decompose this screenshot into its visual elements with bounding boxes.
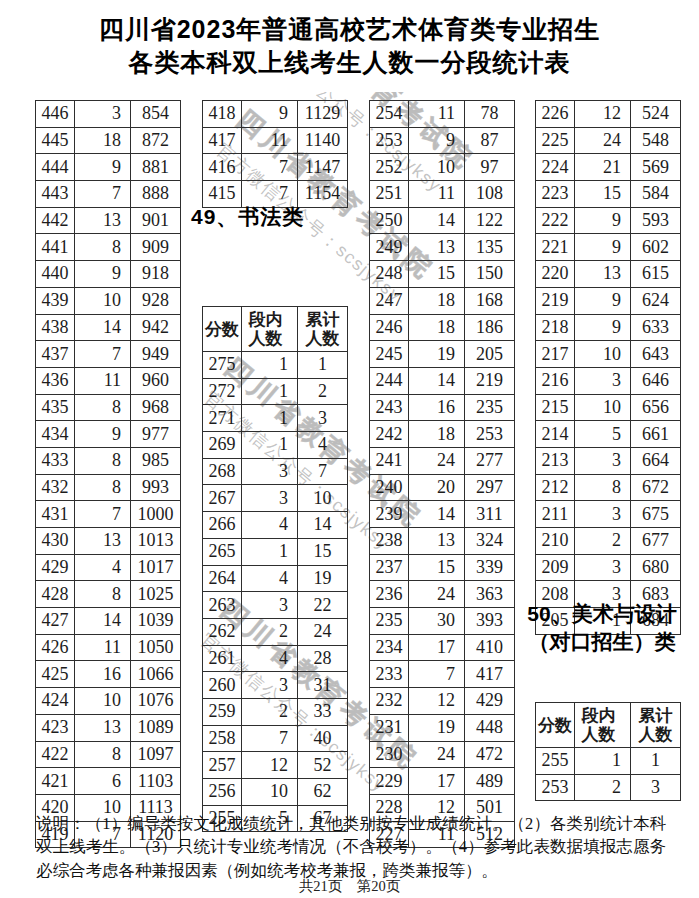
segment-count-cell: 3	[575, 367, 631, 394]
table-row: 4463854	[36, 101, 181, 128]
score-cell: 210	[536, 528, 575, 555]
title-line-2: 各类本科双上线考生人数一分段统计表	[0, 46, 699, 79]
table-row: 44518872	[36, 127, 181, 154]
cumulative-count-cell: 548	[631, 127, 681, 154]
table-row: 43910928	[36, 287, 181, 314]
score-cell: 257	[203, 752, 242, 779]
table-row: 2145661	[536, 421, 681, 448]
table-row: 26914	[203, 432, 348, 459]
segment-count-cell: 3	[575, 501, 631, 528]
cumulative-count-cell: 363	[465, 581, 515, 608]
segment-count-cell: 15	[409, 554, 465, 581]
score-cell: 262	[203, 618, 242, 645]
cumulative-count-cell: 150	[465, 261, 515, 288]
segment-count-cell: 3	[75, 101, 131, 128]
table-row: 2163646	[536, 367, 681, 394]
segment-count-cell: 10	[242, 779, 298, 806]
segment-count-cell: 3	[242, 458, 298, 485]
segment-count-cell: 7	[75, 501, 131, 528]
cumulative-count-cell: 87	[465, 127, 515, 154]
segment-count-cell: 10	[75, 287, 131, 314]
segment-count-cell: 10	[575, 341, 631, 368]
cumulative-count-cell: 1013	[131, 528, 181, 555]
table-row: 23715339	[370, 554, 515, 581]
table-row: 267310	[203, 485, 348, 512]
table-row: 27511	[203, 352, 348, 379]
score-cell: 436	[36, 367, 75, 394]
table-row: 425161066	[36, 661, 181, 688]
segment-count-cell: 11	[75, 634, 131, 661]
cumulative-count-cell: 429	[465, 688, 515, 715]
table-row: 23914311	[370, 501, 515, 528]
cumulative-count-cell: 1147	[298, 154, 348, 181]
cumulative-count-cell: 1000	[131, 501, 181, 528]
header-row: 分数段内 人数累计 人数	[203, 307, 348, 352]
segment-count-cell: 24	[409, 447, 465, 474]
score-cell: 244	[370, 367, 409, 394]
table-row: 4409918	[36, 261, 181, 288]
segment-count-cell: 9	[75, 421, 131, 448]
segment-count-cell: 24	[575, 127, 631, 154]
table-row: 22524548	[536, 127, 681, 154]
segment-count-cell: 1	[242, 352, 298, 379]
score-cell: 432	[36, 474, 75, 501]
table-row: 2128672	[536, 474, 681, 501]
score-cell: 430	[36, 528, 75, 555]
segment-count-cell: 17	[409, 634, 465, 661]
table-row: 253987	[370, 127, 515, 154]
table-row: 24519205	[370, 341, 515, 368]
segment-count-cell: 18	[409, 421, 465, 448]
document-page: 四川省教育考试院 官方微信公众号：scsjyksy 四川省教育考试院 官方微信公…	[0, 0, 699, 898]
segment-count-cell: 9	[409, 127, 465, 154]
cumulative-count-cell: 448	[465, 714, 515, 741]
table-row: 266414	[203, 512, 348, 539]
score-cell: 216	[536, 367, 575, 394]
score-cell: 265	[203, 538, 242, 565]
segment-count-cell: 4	[242, 512, 298, 539]
score-cell: 258	[203, 725, 242, 752]
table-row: 423131089	[36, 714, 181, 741]
table-row: 424101076	[36, 688, 181, 715]
segment-count-cell: 13	[409, 528, 465, 555]
score-cell: 241	[370, 447, 409, 474]
cumulative-count-cell: 1097	[131, 741, 181, 768]
cumulative-count-cell: 680	[631, 554, 681, 581]
segment-count-cell: 16	[409, 394, 465, 421]
segment-count-cell: 1	[575, 748, 631, 775]
table-row: 2219602	[536, 234, 681, 261]
cumulative-count-cell: 31	[298, 672, 348, 699]
score-cell: 224	[536, 154, 575, 181]
score-cell: 209	[536, 554, 575, 581]
cumulative-count-cell: 1089	[131, 714, 181, 741]
segment-count-cell: 12	[575, 101, 631, 128]
section-50-heading-line2: （对口招生）类	[514, 628, 690, 656]
cumulative-count-cell: 909	[131, 234, 181, 261]
cumulative-count-cell: 569	[631, 154, 681, 181]
cumulative-count-cell: 888	[131, 181, 181, 208]
cumulative-count-cell: 4	[298, 432, 348, 459]
column-header: 累计 人数	[631, 703, 681, 748]
score-cell: 237	[370, 554, 409, 581]
score-cell: 250	[370, 207, 409, 234]
table-row: 43814942	[36, 314, 181, 341]
table-row: 258740	[203, 725, 348, 752]
cumulative-count-cell: 253	[465, 421, 515, 448]
score-cell: 416	[203, 154, 242, 181]
table-row: 4437888	[36, 181, 181, 208]
table-row: 264419	[203, 565, 348, 592]
segment-count-cell: 9	[242, 101, 298, 128]
cumulative-count-cell: 1103	[131, 768, 181, 795]
score-cell: 269	[203, 432, 242, 459]
score-cell: 225	[536, 127, 575, 154]
score-cell: 417	[203, 127, 242, 154]
cumulative-count-cell: 524	[631, 101, 681, 128]
column-header: 分数	[536, 703, 575, 748]
table-row: 2521097	[370, 154, 515, 181]
cumulative-count-cell: 1066	[131, 661, 181, 688]
segment-count-cell: 8	[575, 474, 631, 501]
segment-count-cell: 10	[409, 154, 465, 181]
table-row: 417111140	[203, 127, 348, 154]
table-row: 2189633	[536, 314, 681, 341]
table-row: 27113	[203, 405, 348, 432]
segment-count-cell: 24	[409, 581, 465, 608]
score-cell: 246	[370, 314, 409, 341]
table-row: 24414219	[370, 367, 515, 394]
segment-count-cell: 18	[409, 314, 465, 341]
cumulative-count-cell: 1076	[131, 688, 181, 715]
cumulative-count-cell: 872	[131, 127, 181, 154]
score-cell: 260	[203, 672, 242, 699]
table-row: 25014122	[370, 207, 515, 234]
score-cell: 226	[536, 101, 575, 128]
table-row: 42281097	[36, 741, 181, 768]
score-cell: 443	[36, 181, 75, 208]
cumulative-count-cell: 14	[298, 512, 348, 539]
cumulative-count-cell: 1050	[131, 634, 181, 661]
score-cell: 259	[203, 698, 242, 725]
table-row: 2541178	[370, 101, 515, 128]
score-cell: 271	[203, 405, 242, 432]
score-cell: 445	[36, 127, 75, 154]
table-row: 24913135	[370, 234, 515, 261]
cumulative-count-cell: 489	[465, 768, 515, 795]
cumulative-count-cell: 97	[465, 154, 515, 181]
segment-count-cell: 9	[75, 154, 131, 181]
table-row: 24618186	[370, 314, 515, 341]
score-cell: 213	[536, 447, 575, 474]
table-row: 24815150	[370, 261, 515, 288]
table-row: 4358968	[36, 394, 181, 421]
cumulative-count-cell: 901	[131, 207, 181, 234]
segment-count-cell: 1	[242, 378, 298, 405]
score-cell: 233	[370, 661, 409, 688]
table-row: 24020297	[370, 474, 515, 501]
table-row: 22612524	[536, 101, 681, 128]
segment-count-cell: 11	[409, 101, 465, 128]
segment-count-cell: 13	[409, 234, 465, 261]
segment-count-cell: 15	[575, 181, 631, 208]
table-row: 22917489	[370, 768, 515, 795]
cumulative-count-cell: 656	[631, 394, 681, 421]
cumulative-count-cell: 324	[465, 528, 515, 555]
score-cell: 252	[370, 154, 409, 181]
segment-count-cell: 18	[75, 127, 131, 154]
segment-count-cell: 1	[242, 432, 298, 459]
segment-count-cell: 14	[409, 367, 465, 394]
score-cell: 240	[370, 474, 409, 501]
segment-count-cell: 2	[242, 698, 298, 725]
score-cell: 426	[36, 634, 75, 661]
score-cell: 223	[536, 181, 575, 208]
cumulative-count-cell: 624	[631, 287, 681, 314]
segment-count-cell: 7	[75, 181, 131, 208]
table-row: 23417410	[370, 634, 515, 661]
cumulative-count-cell: 960	[131, 367, 181, 394]
score-cell: 248	[370, 261, 409, 288]
table-row: 2102677	[536, 528, 681, 555]
segment-count-cell: 20	[409, 474, 465, 501]
segment-count-cell: 13	[75, 714, 131, 741]
score-cell: 243	[370, 394, 409, 421]
segment-count-cell: 12	[242, 752, 298, 779]
cumulative-count-cell: 33	[298, 698, 348, 725]
score-table-col4-top: 2261252422524548224215692231558422295932…	[535, 100, 681, 635]
segment-count-cell: 11	[409, 181, 465, 208]
score-cell: 421	[36, 768, 75, 795]
score-cell: 427	[36, 608, 75, 635]
segment-count-cell: 3	[575, 554, 631, 581]
table-row: 2199624	[536, 287, 681, 314]
score-table-col1: 4463854445188724449881443788844213901441…	[35, 100, 181, 848]
table-row: 24316235	[370, 394, 515, 421]
cumulative-count-cell: 672	[631, 474, 681, 501]
score-cell: 212	[536, 474, 575, 501]
table-row: 25511	[536, 748, 681, 775]
cumulative-count-cell: 977	[131, 421, 181, 448]
score-cell: 434	[36, 421, 75, 448]
table-row: 430131013	[36, 528, 181, 555]
segment-count-cell: 8	[75, 394, 131, 421]
cumulative-count-cell: 584	[631, 181, 681, 208]
score-cell: 423	[36, 714, 75, 741]
table-row: 4349977	[36, 421, 181, 448]
segment-count-cell: 1	[242, 405, 298, 432]
cumulative-count-cell: 62	[298, 779, 348, 806]
score-cell: 431	[36, 501, 75, 528]
segment-count-cell: 8	[75, 474, 131, 501]
cumulative-count-cell: 15	[298, 538, 348, 565]
score-cell: 444	[36, 154, 75, 181]
score-cell: 214	[536, 421, 575, 448]
cumulative-count-cell: 339	[465, 554, 515, 581]
cumulative-count-cell: 1140	[298, 127, 348, 154]
art-design-vocational-score-table: 分数段内 人数累计 人数2551125323	[535, 702, 681, 801]
segment-count-cell: 8	[75, 741, 131, 768]
table-row: 24718168	[370, 287, 515, 314]
segment-count-cell: 9	[575, 234, 631, 261]
table-row: 427141039	[36, 608, 181, 635]
cumulative-count-cell: 993	[131, 474, 181, 501]
score-cell: 266	[203, 512, 242, 539]
table-row: 42941017	[36, 554, 181, 581]
table-row: 24218253	[370, 421, 515, 448]
segment-count-cell: 14	[409, 501, 465, 528]
table-row: 262224	[203, 618, 348, 645]
cumulative-count-cell: 633	[631, 314, 681, 341]
page-title: 四川省2023年普通高校艺术体育类专业招生 各类本科双上线考生人数一分段统计表	[0, 13, 699, 79]
segment-count-cell: 11	[242, 127, 298, 154]
score-cell: 230	[370, 741, 409, 768]
segment-count-cell: 8	[75, 447, 131, 474]
score-cell: 438	[36, 314, 75, 341]
segment-count-cell: 7	[242, 154, 298, 181]
cumulative-count-cell: 22	[298, 592, 348, 619]
segment-count-cell: 18	[409, 287, 465, 314]
cumulative-count-cell: 24	[298, 618, 348, 645]
cumulative-count-cell: 675	[631, 501, 681, 528]
segment-count-cell: 12	[409, 688, 465, 715]
section-50-heading: 50、美术与设计 （对口招生）类	[514, 600, 690, 656]
segment-count-cell: 16	[75, 661, 131, 688]
score-cell: 275	[203, 352, 242, 379]
table-row: 41671147	[203, 154, 348, 181]
score-cell: 268	[203, 458, 242, 485]
table-row: 263322	[203, 592, 348, 619]
table-row: 43611960	[36, 367, 181, 394]
cumulative-count-cell: 393	[465, 608, 515, 635]
score-cell: 437	[36, 341, 75, 368]
score-table-col2-top: 418911294171111404167114741571154	[202, 100, 348, 208]
cumulative-count-cell: 168	[465, 287, 515, 314]
segment-count-cell: 21	[575, 154, 631, 181]
table-row: 4449881	[36, 154, 181, 181]
cumulative-count-cell: 28	[298, 645, 348, 672]
score-cell: 222	[536, 207, 575, 234]
cumulative-count-cell: 205	[465, 341, 515, 368]
cumulative-count-cell: 677	[631, 528, 681, 555]
score-cell: 249	[370, 234, 409, 261]
cumulative-count-cell: 417	[465, 661, 515, 688]
score-cell: 238	[370, 528, 409, 555]
cumulative-count-cell: 918	[131, 261, 181, 288]
table-row: 24124277	[370, 447, 515, 474]
cumulative-count-cell: 219	[465, 367, 515, 394]
score-cell: 263	[203, 592, 242, 619]
title-line-1: 四川省2023年普通高校艺术体育类专业招生	[0, 13, 699, 46]
cumulative-count-cell: 643	[631, 341, 681, 368]
table-row: 2133664	[536, 447, 681, 474]
segment-count-cell: 3	[575, 447, 631, 474]
cumulative-count-cell: 1039	[131, 608, 181, 635]
cumulative-count-cell: 277	[465, 447, 515, 474]
score-cell: 236	[370, 581, 409, 608]
table-row: 22315584	[536, 181, 681, 208]
segment-count-cell: 2	[575, 528, 631, 555]
table-row: 259233	[203, 698, 348, 725]
cumulative-count-cell: 2	[298, 378, 348, 405]
table-row: 4328993	[36, 474, 181, 501]
cumulative-count-cell: 135	[465, 234, 515, 261]
cumulative-count-cell: 7	[298, 458, 348, 485]
table-row: 25111108	[370, 181, 515, 208]
score-cell: 221	[536, 234, 575, 261]
score-cell: 446	[36, 101, 75, 128]
column-header: 分数	[203, 307, 242, 352]
segment-count-cell: 19	[409, 341, 465, 368]
score-cell: 231	[370, 714, 409, 741]
cumulative-count-cell: 10	[298, 485, 348, 512]
cumulative-count-cell: 615	[631, 261, 681, 288]
cumulative-count-cell: 1	[298, 352, 348, 379]
segment-count-cell: 19	[409, 714, 465, 741]
segment-count-cell: 14	[75, 314, 131, 341]
table-row: 261428	[203, 645, 348, 672]
segment-count-cell: 9	[575, 207, 631, 234]
score-cell: 429	[36, 554, 75, 581]
segment-count-cell: 7	[242, 725, 298, 752]
score-cell: 242	[370, 421, 409, 448]
score-cell: 217	[536, 341, 575, 368]
score-cell: 256	[203, 779, 242, 806]
table-row: 4377949	[36, 341, 181, 368]
cumulative-count-cell: 3	[298, 405, 348, 432]
score-cell: 245	[370, 341, 409, 368]
table-row: 23530393	[370, 608, 515, 635]
cumulative-count-cell: 854	[131, 101, 181, 128]
cumulative-count-cell: 664	[631, 447, 681, 474]
column-header: 累计 人数	[298, 307, 348, 352]
cumulative-count-cell: 40	[298, 725, 348, 752]
score-cell: 440	[36, 261, 75, 288]
table-row: 43171000	[36, 501, 181, 528]
segment-count-cell: 5	[575, 421, 631, 448]
cumulative-count-cell: 1154	[298, 181, 348, 208]
segment-count-cell: 7	[409, 661, 465, 688]
score-cell: 255	[536, 748, 575, 775]
score-cell: 267	[203, 485, 242, 512]
segment-count-cell: 10	[575, 394, 631, 421]
score-cell: 442	[36, 207, 75, 234]
segment-count-cell: 13	[75, 207, 131, 234]
segment-count-cell: 13	[75, 528, 131, 555]
section-50-heading-line1: 50、美术与设计	[514, 600, 690, 628]
score-cell: 234	[370, 634, 409, 661]
score-cell: 235	[370, 608, 409, 635]
table-row: 42161103	[36, 768, 181, 795]
segment-count-cell: 9	[575, 314, 631, 341]
score-cell: 254	[370, 101, 409, 128]
segment-count-cell: 4	[75, 554, 131, 581]
cumulative-count-cell: 949	[131, 341, 181, 368]
column-header: 段内 人数	[242, 307, 298, 352]
segment-count-cell: 8	[75, 234, 131, 261]
score-cell: 232	[370, 688, 409, 715]
segment-count-cell: 15	[409, 261, 465, 288]
score-cell: 253	[370, 127, 409, 154]
table-row: 22421569	[536, 154, 681, 181]
segment-count-cell: 2	[575, 774, 631, 801]
table-row: 265115	[203, 538, 348, 565]
table-row: 23119448	[370, 714, 515, 741]
segment-count-cell: 4	[242, 565, 298, 592]
table-row: 41891129	[203, 101, 348, 128]
cumulative-count-cell: 881	[131, 154, 181, 181]
segment-count-cell: 10	[75, 688, 131, 715]
